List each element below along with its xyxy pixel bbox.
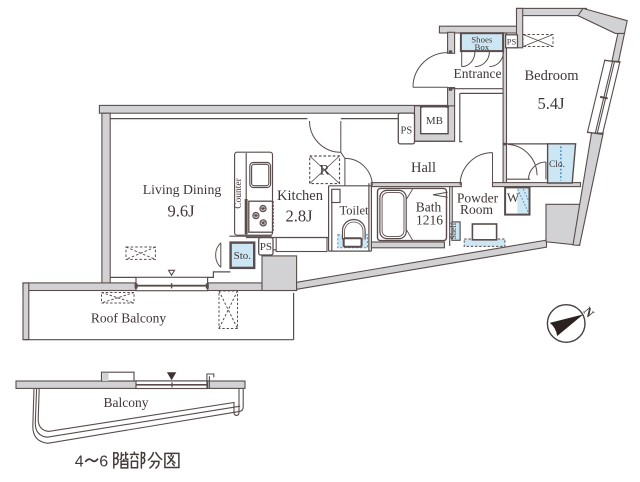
svg-text:4: 4	[75, 453, 84, 470]
svg-text:Box: Box	[474, 42, 489, 52]
svg-text:Living Dining: Living Dining	[143, 182, 222, 197]
svg-text:9.6J: 9.6J	[167, 202, 195, 221]
svg-text:Room: Room	[460, 202, 494, 217]
svg-text:2.8J: 2.8J	[285, 207, 313, 226]
svg-text:Clo.: Clo.	[549, 160, 565, 170]
svg-text:Counter: Counter	[234, 177, 244, 208]
svg-text:Bedroom: Bedroom	[525, 68, 580, 84]
svg-text:Roof Balcony: Roof Balcony	[91, 311, 167, 326]
svg-text:1216: 1216	[416, 213, 443, 228]
svg-text:N: N	[580, 304, 597, 320]
svg-text:PS: PS	[260, 241, 272, 253]
svg-text:PS: PS	[401, 125, 413, 136]
svg-text:Kitchen: Kitchen	[277, 188, 324, 204]
svg-text:Shelf: Shelf	[449, 222, 458, 239]
svg-text:Entrance: Entrance	[454, 66, 502, 81]
svg-text:6: 6	[99, 453, 108, 470]
svg-text:PS: PS	[507, 36, 517, 46]
svg-text:Sto.: Sto.	[234, 250, 252, 262]
svg-text:Toilet: Toilet	[340, 204, 370, 218]
svg-text:Balcony: Balcony	[104, 395, 149, 410]
svg-text:5.4J: 5.4J	[537, 94, 565, 113]
svg-text:W: W	[507, 190, 520, 205]
svg-text:MB: MB	[426, 115, 443, 127]
svg-text:R: R	[319, 163, 329, 179]
svg-text:Hall: Hall	[411, 160, 436, 176]
